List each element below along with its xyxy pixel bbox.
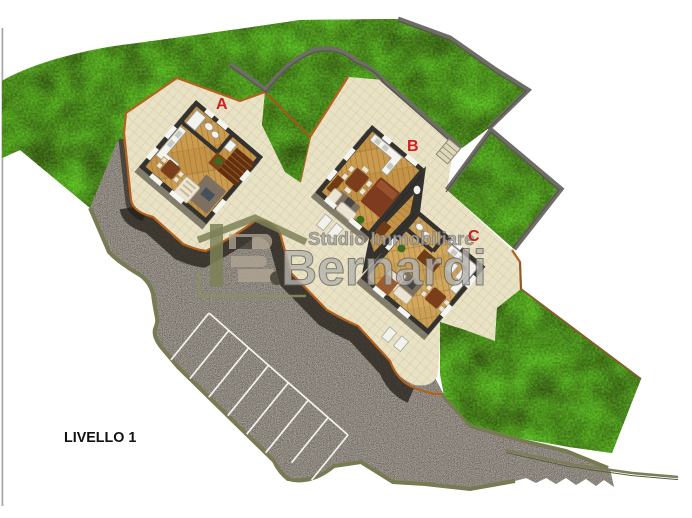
svg-text:LIVELLO 1: LIVELLO 1 <box>64 430 136 446</box>
svg-text:Bernardi: Bernardi <box>281 240 487 296</box>
svg-text:A: A <box>216 96 228 113</box>
svg-text:B: B <box>407 138 419 155</box>
svg-text:C: C <box>468 228 480 245</box>
